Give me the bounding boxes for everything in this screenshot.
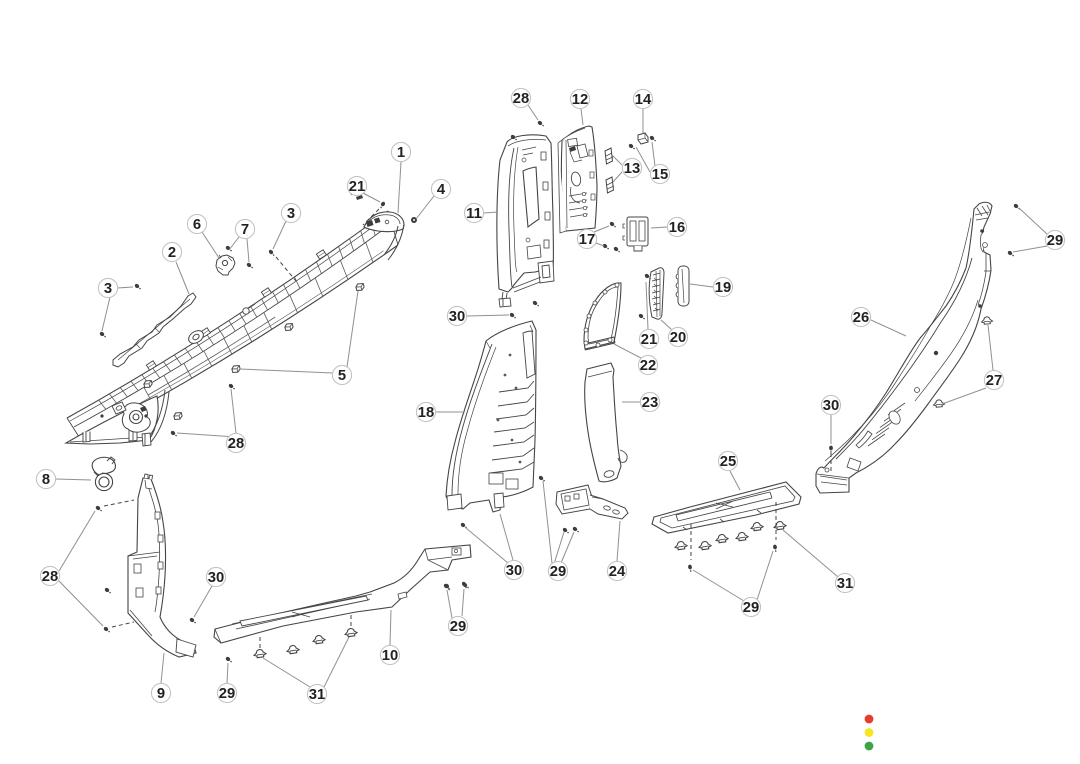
svg-text:1: 1 <box>397 145 405 161</box>
svg-text:29: 29 <box>550 564 566 580</box>
svg-text:5: 5 <box>338 368 346 384</box>
svg-text:24: 24 <box>609 564 626 580</box>
svg-text:22: 22 <box>640 358 656 374</box>
svg-text:13: 13 <box>624 161 640 177</box>
svg-text:29: 29 <box>743 600 759 616</box>
svg-text:10: 10 <box>382 648 398 664</box>
svg-text:30: 30 <box>449 309 465 325</box>
svg-text:27: 27 <box>986 373 1002 389</box>
svg-text:4: 4 <box>437 182 446 198</box>
svg-text:6: 6 <box>193 217 201 233</box>
svg-text:17: 17 <box>579 232 595 248</box>
svg-text:28: 28 <box>228 436 244 452</box>
svg-text:3: 3 <box>287 206 295 222</box>
svg-text:26: 26 <box>853 310 869 326</box>
svg-text:8: 8 <box>42 472 50 488</box>
svg-text:25: 25 <box>720 454 736 470</box>
svg-text:29: 29 <box>450 619 466 635</box>
svg-text:30: 30 <box>823 398 839 414</box>
svg-text:31: 31 <box>837 576 853 592</box>
svg-text:19: 19 <box>715 280 731 296</box>
svg-text:23: 23 <box>642 395 658 411</box>
svg-text:9: 9 <box>157 686 165 702</box>
svg-text:3: 3 <box>104 281 112 297</box>
svg-text:15: 15 <box>652 167 668 183</box>
svg-text:14: 14 <box>635 92 652 108</box>
svg-text:2: 2 <box>168 245 176 261</box>
svg-text:29: 29 <box>219 686 235 702</box>
svg-text:7: 7 <box>241 222 249 238</box>
svg-text:31: 31 <box>309 687 325 703</box>
svg-text:29: 29 <box>1047 233 1063 249</box>
svg-text:28: 28 <box>513 91 529 107</box>
svg-text:20: 20 <box>670 330 686 346</box>
svg-text:16: 16 <box>669 220 685 236</box>
svg-text:30: 30 <box>208 570 224 586</box>
svg-text:21: 21 <box>349 179 365 195</box>
svg-text:28: 28 <box>42 569 58 585</box>
svg-text:11: 11 <box>466 206 482 222</box>
svg-text:12: 12 <box>572 92 588 108</box>
svg-text:21: 21 <box>641 332 657 348</box>
svg-text:18: 18 <box>418 405 434 421</box>
svg-text:30: 30 <box>506 563 522 579</box>
